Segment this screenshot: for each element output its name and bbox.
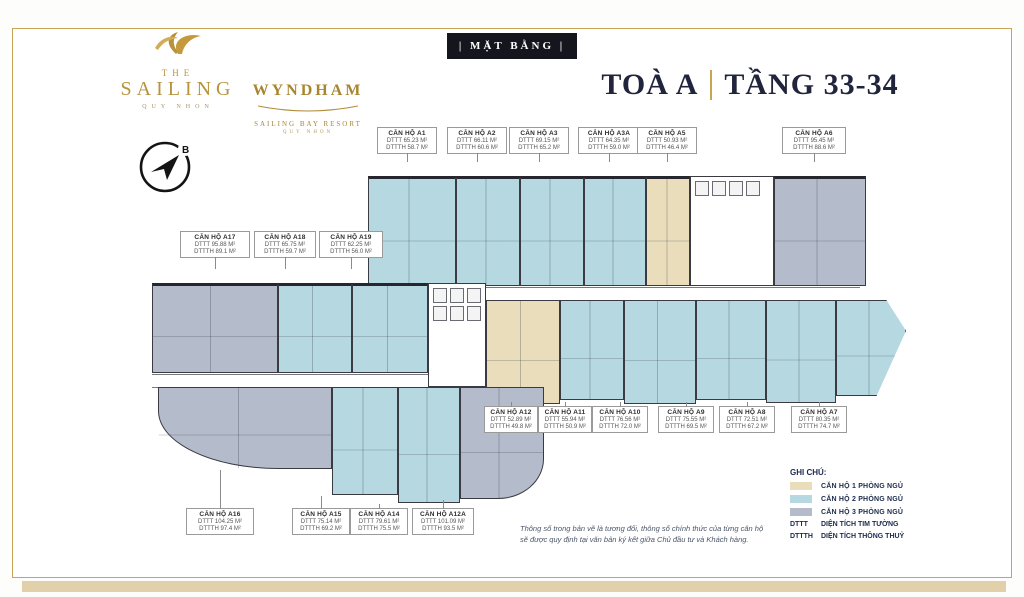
unit-label-a17: CĂN HỘ A17 DTTT 95.88 M² DTTTH 89.1 M² bbox=[180, 231, 250, 258]
unit-dtth: DTTTH 69.2 M² bbox=[294, 526, 348, 532]
plan-unit-a12a bbox=[460, 387, 544, 499]
plan-unit-a11 bbox=[560, 300, 624, 400]
legend-label: CĂN HỘ 3 PHÒNG NGỦ bbox=[821, 509, 903, 516]
sailing-wave-icon bbox=[147, 30, 209, 66]
unit-label-a2: CĂN HỘ A2 DTTT 66.11 M² DTTTH 60.6 M² bbox=[447, 127, 507, 154]
wyndham-logo: WYNDHAM SAILING BAY RESORT QUY NHON bbox=[248, 82, 368, 135]
page-title: TOÀ A TẦNG 33-34 bbox=[570, 68, 930, 102]
unit-name: CĂN HỘ A10 bbox=[594, 409, 646, 416]
north-compass-icon: B bbox=[136, 136, 200, 201]
plan-unit-a8 bbox=[766, 300, 836, 403]
unit-label-a14: CĂN HỘ A14 DTTT 79.61 M² DTTTH 75.5 M² bbox=[350, 508, 408, 535]
legend-item-2br: CĂN HỘ 2 PHÒNG NGỦ bbox=[790, 495, 904, 503]
unit-name: CĂN HỘ A7 bbox=[793, 409, 845, 416]
abbr-key: DTTT bbox=[790, 521, 821, 528]
plan-unit-a18 bbox=[278, 283, 352, 373]
elevator-cell bbox=[467, 288, 481, 303]
plan-unit-a9 bbox=[696, 300, 766, 400]
unit-name: CĂN HỘ A2 bbox=[449, 130, 505, 137]
elevator-cell bbox=[695, 181, 709, 196]
unit-dtth: DTTTH 88.6 M² bbox=[784, 145, 844, 151]
unit-label-a16: CĂN HỘ A16 DTTT 104.25 M² DTTTH 97.4 M² bbox=[186, 508, 254, 535]
legend-swatch-1br bbox=[790, 482, 812, 490]
unit-dttt: DTTT 52.89 M² bbox=[486, 417, 536, 423]
unit-dttt: DTTT 95.88 M² bbox=[182, 242, 248, 248]
unit-label-a15: CĂN HỘ A15 DTTT 75.14 M² DTTTH 69.2 M² bbox=[292, 508, 350, 535]
unit-label-a19: CĂN HỘ A19 DTTT 62.25 M² DTTTH 56.0 M² bbox=[319, 231, 383, 258]
unit-name: CĂN HỘ A1 bbox=[379, 130, 435, 137]
elevator-cell bbox=[746, 181, 760, 196]
unit-label-a12a: CĂN HỘ A12A DTTT 101.09 M² DTTTH 93.5 M² bbox=[412, 508, 474, 535]
unit-label-a11: CĂN HỘ A11 DTTT 55.94 M² DTTTH 50.9 M² bbox=[538, 406, 592, 433]
unit-name: CĂN HỘ A15 bbox=[294, 511, 348, 518]
plan-unit-a5 bbox=[646, 176, 690, 286]
legend-label: CĂN HỘ 2 PHÒNG NGỦ bbox=[821, 496, 903, 503]
unit-dtth: DTTTH 56.0 M² bbox=[321, 249, 381, 255]
legend-label: CĂN HỘ 1 PHÒNG NGỦ bbox=[821, 483, 903, 490]
unit-name: CĂN HỘ A11 bbox=[540, 409, 590, 416]
unit-label-a8: CĂN HỘ A8 DTTT 72.51 M² DTTTH 67.2 M² bbox=[719, 406, 775, 433]
plan-corridor-left bbox=[152, 374, 428, 388]
unit-dttt: DTTT 62.25 M² bbox=[321, 242, 381, 248]
unit-name: CĂN HỘ A3 bbox=[511, 130, 567, 137]
unit-label-a9: CĂN HỘ A9 DTTT 75.55 M² DTTTH 69.5 M² bbox=[658, 406, 714, 433]
unit-dtth: DTTTH 93.5 M² bbox=[414, 526, 472, 532]
unit-label-a7: CĂN HỘ A7 DTTT 80.35 M² DTTTH 74.7 M² bbox=[791, 406, 847, 433]
elevator-cell bbox=[450, 306, 464, 321]
unit-dttt: DTTT 65.23 M² bbox=[379, 138, 435, 144]
abbr-label: DIỆN TÍCH THÔNG THUỶ bbox=[821, 533, 904, 540]
unit-dtth: DTTTH 50.9 M² bbox=[540, 424, 590, 430]
unit-label-a1: CĂN HỘ A1 DTTT 65.23 M² DTTTH 58.7 M² bbox=[377, 127, 437, 154]
legend-swatch-3br bbox=[790, 508, 812, 516]
plan-core-top bbox=[690, 176, 774, 286]
unit-label-a3: CĂN HỘ A3 DTTT 69.15 M² DTTTH 65.2 M² bbox=[509, 127, 569, 154]
unit-label-a3a: CĂN HỘ A3A DTTT 64.35 M² DTTTH 59.0 M² bbox=[578, 127, 640, 154]
unit-dtth: DTTTH 67.2 M² bbox=[721, 424, 773, 430]
abbr-label: DIỆN TÍCH TIM TƯỜNG bbox=[821, 521, 899, 528]
elevator-cell bbox=[467, 306, 481, 321]
brand-sailing: SAILING bbox=[118, 78, 238, 101]
unit-name: CĂN HỘ A5 bbox=[639, 130, 695, 137]
plan-unit-a6 bbox=[774, 176, 866, 286]
abbr-key: DTTTH bbox=[790, 533, 821, 540]
unit-dtth: DTTTH 89.1 M² bbox=[182, 249, 248, 255]
legend: GHI CHÚ: CĂN HỘ 1 PHÒNG NGỦ CĂN HỘ 2 PHÒ… bbox=[790, 468, 904, 540]
plan-unit-a19 bbox=[352, 283, 428, 373]
plan-unit-a16 bbox=[158, 387, 332, 469]
unit-dttt: DTTT 65.75 M² bbox=[256, 242, 314, 248]
plan-unit-a10 bbox=[624, 300, 696, 404]
floor-range: TẦNG 33-34 bbox=[724, 68, 898, 102]
unit-dtth: DTTTH 74.7 M² bbox=[793, 424, 845, 430]
brand-wyndham-sub1: SAILING BAY RESORT bbox=[248, 120, 368, 128]
unit-dttt: DTTT 55.94 M² bbox=[540, 417, 590, 423]
unit-dttt: DTTT 104.25 M² bbox=[188, 519, 252, 525]
unit-name: CĂN HỘ A17 bbox=[182, 234, 248, 241]
unit-dtth: DTTTH 59.0 M² bbox=[580, 145, 638, 151]
plan-unit-a2 bbox=[456, 176, 520, 286]
unit-dtth: DTTTH 65.2 M² bbox=[511, 145, 567, 151]
unit-label-a5: CĂN HỘ A5 DTTT 50.93 M² DTTTH 46.4 M² bbox=[637, 127, 697, 154]
unit-dtth: DTTTH 72.0 M² bbox=[594, 424, 646, 430]
unit-dtth: DTTTH 46.4 M² bbox=[639, 145, 695, 151]
unit-name: CĂN HỘ A12 bbox=[486, 409, 536, 416]
unit-name: CĂN HỘ A3A bbox=[580, 130, 638, 137]
unit-name: CĂN HỘ A16 bbox=[188, 511, 252, 518]
plan-unit-a3a bbox=[584, 176, 646, 286]
plan-unit-a3 bbox=[520, 176, 584, 286]
brand-sailing-sub: QUY NHON bbox=[118, 104, 238, 110]
wyndham-arc bbox=[253, 105, 363, 113]
brand-wyndham-sub2: QUY NHON bbox=[248, 130, 368, 135]
unit-dttt: DTTT 64.35 M² bbox=[580, 138, 638, 144]
unit-name: CĂN HỘ A12A bbox=[414, 511, 472, 518]
plan-unit-a17 bbox=[152, 283, 278, 373]
brand-the: THE bbox=[118, 68, 238, 78]
unit-label-a6: CĂN HỘ A6 DTTT 95.45 M² DTTTH 88.6 M² bbox=[782, 127, 846, 154]
unit-name: CĂN HỘ A8 bbox=[721, 409, 773, 416]
floorplan-poster: THE SAILING QUY NHON WYNDHAM SAILING BAY… bbox=[0, 0, 1024, 597]
unit-name: CĂN HỘ A9 bbox=[660, 409, 712, 416]
unit-name: CĂN HỘ A14 bbox=[352, 511, 406, 518]
unit-dtth: DTTTH 49.8 M² bbox=[486, 424, 536, 430]
unit-name: CĂN HỘ A18 bbox=[256, 234, 314, 241]
unit-dttt: DTTT 95.45 M² bbox=[784, 138, 844, 144]
unit-dttt: DTTT 50.93 M² bbox=[639, 138, 695, 144]
legend-item-1br: CĂN HỘ 1 PHÒNG NGỦ bbox=[790, 482, 904, 490]
unit-dtth: DTTTH 75.5 M² bbox=[352, 526, 406, 532]
unit-dtth: DTTTH 59.7 M² bbox=[256, 249, 314, 255]
legend-abbr-dtth: DTTTH DIỆN TÍCH THÔNG THUỶ bbox=[790, 533, 904, 540]
unit-label-a10: CĂN HỘ A10 DTTT 76.56 M² DTTTH 72.0 M² bbox=[592, 406, 648, 433]
unit-dtth: DTTTH 69.5 M² bbox=[660, 424, 712, 430]
unit-dttt: DTTT 76.56 M² bbox=[594, 417, 646, 423]
unit-dttt: DTTT 75.55 M² bbox=[660, 417, 712, 423]
elevator-cell bbox=[712, 181, 726, 196]
unit-label-a12: CĂN HỘ A12 DTTT 52.89 M² DTTTH 49.8 M² bbox=[484, 406, 538, 433]
legend-abbr-dttt: DTTT DIỆN TÍCH TIM TƯỜNG bbox=[790, 521, 904, 528]
legend-title: GHI CHÚ: bbox=[790, 468, 904, 477]
unit-label-a18: CĂN HỘ A18 DTTT 65.75 M² DTTTH 59.7 M² bbox=[254, 231, 316, 258]
card-shadow bbox=[22, 581, 1006, 592]
unit-dttt: DTTT 75.14 M² bbox=[294, 519, 348, 525]
unit-dtth: DTTTH 60.6 M² bbox=[449, 145, 505, 151]
elevator-cell bbox=[729, 181, 743, 196]
unit-dttt: DTTT 80.35 M² bbox=[793, 417, 845, 423]
unit-dttt: DTTT 72.51 M² bbox=[721, 417, 773, 423]
mat-bang-badge: | MẶT BẰNG | bbox=[447, 33, 577, 59]
legend-item-3br: CĂN HỘ 3 PHÒNG NGỦ bbox=[790, 508, 904, 516]
unit-name: CĂN HỘ A19 bbox=[321, 234, 381, 241]
title-divider bbox=[710, 70, 712, 100]
plan-unit-a14 bbox=[398, 387, 460, 503]
unit-name: CĂN HỘ A6 bbox=[784, 130, 844, 137]
unit-dtth: DTTTH 97.4 M² bbox=[188, 526, 252, 532]
unit-dtth: DTTTH 58.7 M² bbox=[379, 145, 435, 151]
legend-swatch-2br bbox=[790, 495, 812, 503]
disclaimer-line2: sẽ được quy định tại văn bản ký kết giữa… bbox=[520, 534, 788, 545]
plan-unit-a15 bbox=[332, 387, 398, 495]
building-name: TOÀ A bbox=[601, 68, 698, 102]
plan-core-left bbox=[428, 283, 486, 387]
brand-wyndham: WYNDHAM bbox=[248, 82, 368, 100]
disclaimer-line1: Thông số trong bản vẽ là tương đối, thôn… bbox=[520, 523, 788, 534]
disclaimer: Thông số trong bản vẽ là tương đối, thôn… bbox=[520, 523, 788, 546]
elevator-cell bbox=[433, 306, 447, 321]
the-sailing-logo: THE SAILING QUY NHON bbox=[118, 30, 238, 110]
unit-dttt: DTTT 79.61 M² bbox=[352, 519, 406, 525]
unit-dttt: DTTT 66.11 M² bbox=[449, 138, 505, 144]
elevator-cell bbox=[433, 288, 447, 303]
compass-letter: B bbox=[182, 145, 189, 156]
elevator-cell bbox=[450, 288, 464, 303]
unit-dttt: DTTT 101.09 M² bbox=[414, 519, 472, 525]
unit-dttt: DTTT 69.15 M² bbox=[511, 138, 567, 144]
